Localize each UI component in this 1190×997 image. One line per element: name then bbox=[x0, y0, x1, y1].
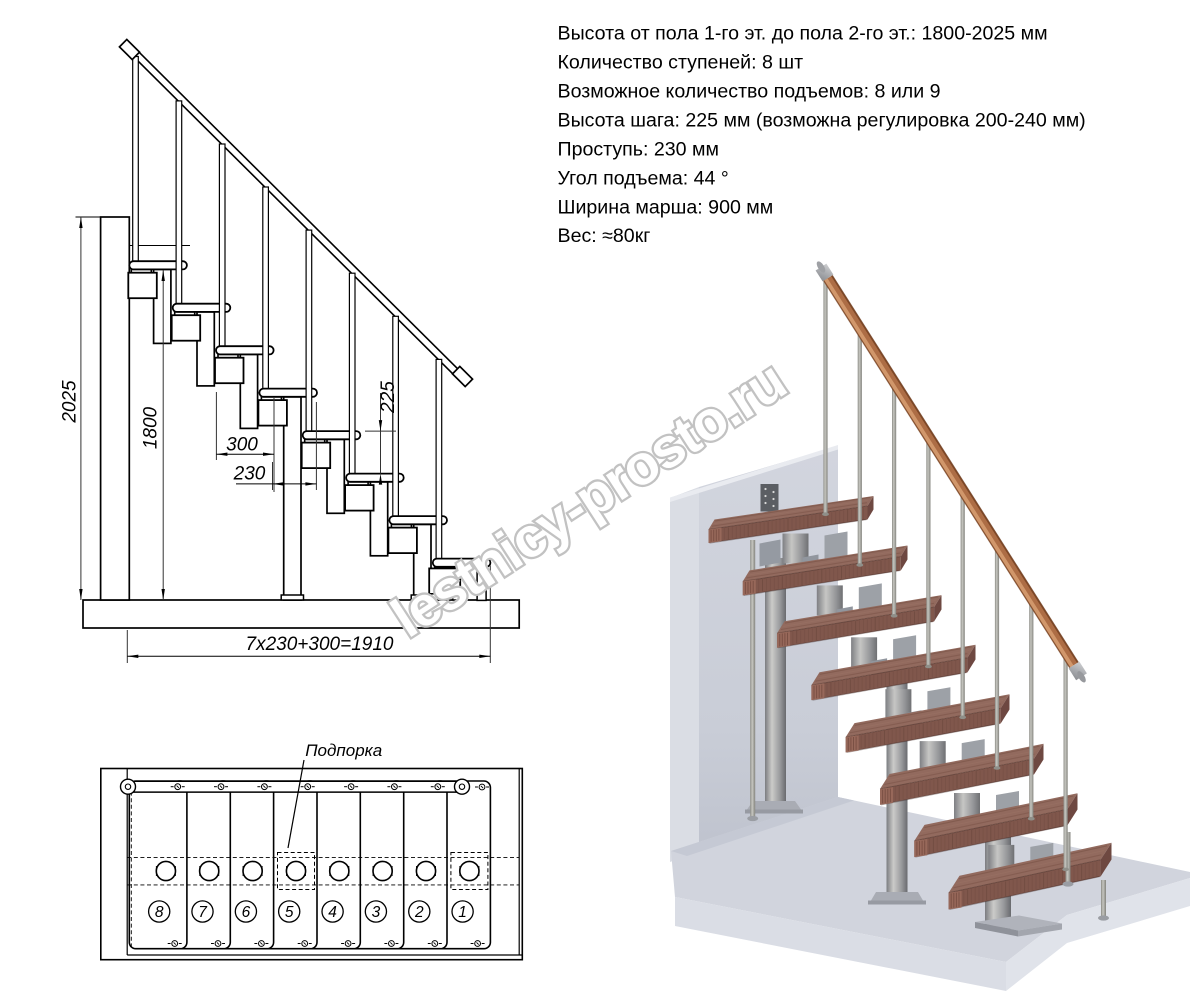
svg-text:8: 8 bbox=[155, 904, 164, 921]
svg-text:7x230+300=1910: 7x230+300=1910 bbox=[246, 634, 394, 655]
svg-text:2: 2 bbox=[414, 904, 424, 921]
svg-text:Высота от пола 1-го эт. до пол: Высота от пола 1-го эт. до пола 2-го эт.… bbox=[558, 23, 1048, 45]
svg-text:Высота шага: 225 мм (возможна: Высота шага: 225 мм (возможна регулировк… bbox=[558, 109, 1086, 131]
svg-text:225: 225 bbox=[378, 381, 399, 414]
svg-text:Ширина марша: 900 мм: Ширина марша: 900 мм bbox=[558, 196, 774, 218]
svg-text:4: 4 bbox=[328, 904, 337, 921]
svg-text:Возможное количество подъемов:: Возможное количество подъемов: 8 или 9 bbox=[558, 80, 941, 102]
svg-text:Угол подъема: 44 °: Угол подъема: 44 ° bbox=[558, 167, 729, 189]
svg-text:Проступь: 230 мм: Проступь: 230 мм bbox=[558, 138, 719, 160]
svg-text:6: 6 bbox=[242, 904, 251, 921]
svg-text:3: 3 bbox=[372, 904, 381, 921]
svg-text:1800: 1800 bbox=[141, 406, 162, 449]
svg-text:1: 1 bbox=[458, 904, 467, 921]
svg-text:230: 230 bbox=[233, 464, 266, 485]
svg-text:7: 7 bbox=[198, 904, 208, 921]
svg-text:5: 5 bbox=[285, 904, 294, 921]
svg-text:Подпорка: Подпорка bbox=[305, 741, 382, 760]
svg-text:300: 300 bbox=[226, 435, 258, 456]
svg-text:2025: 2025 bbox=[60, 380, 81, 424]
svg-text:Вес: ≈80кг: Вес: ≈80кг bbox=[558, 225, 651, 247]
svg-text:Количество ступеней: 8 шт: Количество ступеней: 8 шт bbox=[558, 52, 804, 74]
